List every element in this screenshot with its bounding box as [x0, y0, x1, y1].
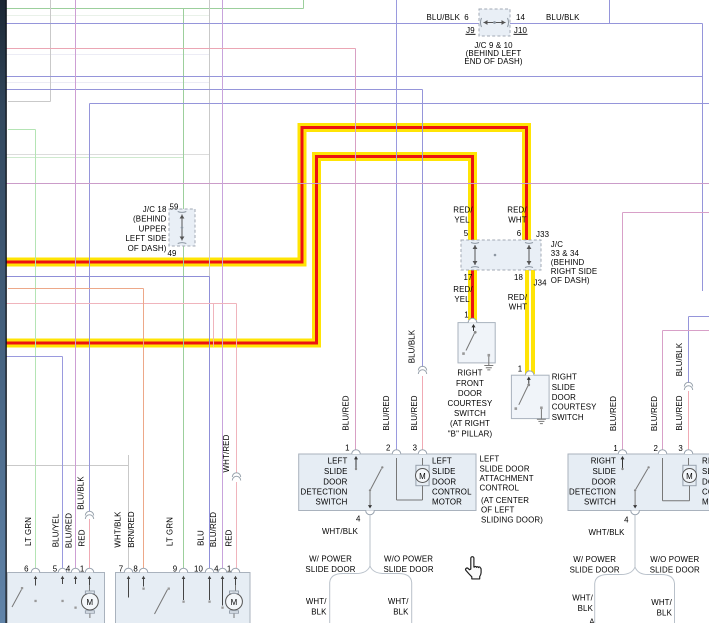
svg-text:SLIDE DOOR: SLIDE DOOR [480, 464, 530, 473]
svg-text:2: 2 [654, 444, 659, 453]
svg-text:CONTROL: CONTROL [702, 488, 709, 497]
svg-text:BLK: BLK [311, 608, 327, 617]
svg-text:BLU/BLK: BLU/BLK [408, 329, 417, 363]
svg-text:J9: J9 [466, 26, 475, 35]
svg-text:BLU/RED: BLU/RED [650, 396, 659, 431]
svg-text:W/O POWER: W/O POWER [650, 555, 699, 564]
svg-text:17: 17 [463, 273, 472, 282]
svg-text:RED: RED [77, 529, 86, 546]
svg-text:6: 6 [464, 13, 469, 22]
svg-text:SLIDE: SLIDE [552, 383, 576, 392]
svg-text:1: 1 [518, 365, 523, 374]
svg-text:BLU/YEL: BLU/YEL [52, 513, 61, 547]
svg-text:(AT CENTER: (AT CENTER [481, 496, 529, 505]
svg-text:FRONT: FRONT [456, 379, 484, 388]
svg-text:BLK: BLK [657, 609, 673, 618]
svg-text:BLU/BLK: BLU/BLK [675, 342, 684, 376]
svg-text:MOTOR: MOTOR [432, 498, 462, 507]
svg-text:BLU/BLK: BLU/BLK [426, 13, 460, 22]
svg-text:49: 49 [167, 249, 177, 258]
svg-text:BLU/BLK: BLU/BLK [546, 13, 580, 22]
svg-text:J33: J33 [536, 230, 550, 239]
svg-text:RIGHT: RIGHT [552, 373, 577, 382]
svg-text:RIGHT: RIGHT [591, 457, 616, 466]
svg-text:7: 7 [119, 565, 124, 574]
svg-text:8: 8 [133, 565, 138, 574]
svg-text:WHT: WHT [508, 216, 526, 225]
svg-text:LEFT SIDE: LEFT SIDE [125, 234, 166, 243]
svg-text:END OF DASH): END OF DASH) [464, 57, 523, 66]
svg-text:YEL: YEL [454, 295, 470, 304]
svg-text:LT GRN: LT GRN [166, 517, 175, 546]
svg-text:OF DASH): OF DASH) [128, 244, 167, 253]
svg-text:5: 5 [53, 565, 58, 574]
svg-text:DOOR: DOOR [592, 477, 616, 486]
svg-text:RED/: RED/ [453, 285, 473, 294]
svg-text:J34: J34 [534, 279, 548, 288]
svg-text:RIGHT: RIGHT [702, 457, 709, 466]
svg-text:SLIDE DOOR: SLIDE DOOR [384, 565, 434, 574]
svg-text:CONTROL: CONTROL [480, 484, 520, 493]
svg-text:YEL: YEL [454, 216, 470, 225]
svg-text:WHT/: WHT/ [651, 598, 672, 607]
svg-text:1: 1 [80, 565, 85, 574]
svg-text:M: M [231, 598, 238, 607]
svg-text:BRN/RED: BRN/RED [127, 511, 136, 548]
svg-text:DOOR: DOOR [458, 389, 482, 398]
svg-text:SLIDE: SLIDE [324, 467, 348, 476]
svg-text:1: 1 [464, 311, 469, 320]
svg-text:SLIDE DOOR: SLIDE DOOR [305, 565, 355, 574]
svg-text:(BEHIND: (BEHIND [551, 258, 585, 267]
svg-text:A: A [589, 618, 595, 623]
svg-text:J10: J10 [514, 26, 528, 35]
svg-text:SLIDE: SLIDE [592, 467, 616, 476]
svg-text:18: 18 [514, 273, 524, 282]
svg-text:9: 9 [173, 565, 178, 574]
svg-text:2: 2 [386, 444, 391, 453]
svg-text:SWITCH: SWITCH [454, 409, 486, 418]
svg-text:(BEHIND: (BEHIND [133, 215, 167, 224]
svg-text:J/C: J/C [551, 240, 563, 249]
svg-text:3: 3 [413, 444, 418, 453]
svg-text:LEFT: LEFT [328, 457, 348, 466]
svg-text:SLIDE DOOR: SLIDE DOOR [570, 566, 620, 575]
svg-text:WHT/RED: WHT/RED [222, 434, 231, 472]
svg-text:CONTROL: CONTROL [432, 488, 472, 497]
svg-text:DOOR: DOOR [552, 393, 576, 402]
svg-text:W/ POWER: W/ POWER [309, 555, 352, 564]
svg-text:SWITCH: SWITCH [552, 413, 584, 422]
svg-text:LEFT: LEFT [432, 457, 452, 466]
svg-text:3: 3 [678, 444, 683, 453]
svg-text:SLIDE DOOR: SLIDE DOOR [650, 566, 700, 575]
svg-text:WHT/BLK: WHT/BLK [114, 511, 123, 548]
svg-text:DETECTION: DETECTION [301, 488, 348, 497]
svg-text:OF LEFT: OF LEFT [481, 506, 515, 515]
svg-text:SLIDING DOOR): SLIDING DOOR) [481, 515, 543, 524]
svg-text:BLU: BLU [197, 530, 206, 546]
svg-text:WHT: WHT [509, 303, 527, 312]
svg-text:"B" PILLAR): "B" PILLAR) [448, 429, 493, 438]
svg-text:DOOR: DOOR [323, 477, 347, 486]
svg-text:W/O POWER: W/O POWER [384, 555, 433, 564]
svg-text:BLK: BLK [393, 608, 409, 617]
svg-text:DETECTION: DETECTION [569, 488, 616, 497]
svg-text:ATTACHMENT: ATTACHMENT [480, 474, 534, 483]
svg-text:BLU/RED: BLU/RED [342, 395, 351, 430]
svg-text:SLIDE: SLIDE [432, 467, 456, 476]
svg-text:BLU/RED: BLU/RED [609, 396, 618, 431]
svg-text:14: 14 [516, 13, 526, 22]
svg-text:LT GRN: LT GRN [24, 517, 33, 546]
svg-text:BLU/RED: BLU/RED [675, 395, 684, 430]
svg-text:BLU/BLK: BLU/BLK [77, 476, 86, 510]
svg-text:4: 4 [356, 515, 361, 524]
svg-text:WHT/: WHT/ [306, 597, 327, 606]
svg-text:6: 6 [24, 565, 29, 574]
svg-text:33 & 34: 33 & 34 [551, 249, 580, 258]
svg-text:WHT/: WHT/ [388, 597, 409, 606]
svg-text:4: 4 [214, 565, 219, 574]
svg-text:10: 10 [194, 565, 204, 574]
svg-text:1: 1 [613, 444, 618, 453]
svg-text:5: 5 [464, 229, 469, 238]
svg-text:1: 1 [345, 444, 350, 453]
svg-text:RED/: RED/ [507, 206, 527, 215]
svg-text:SWITCH: SWITCH [584, 498, 616, 507]
svg-text:4: 4 [624, 516, 629, 525]
svg-text:W/ POWER: W/ POWER [573, 555, 616, 564]
svg-text:M: M [686, 472, 693, 481]
svg-text:RED: RED [225, 529, 234, 546]
svg-text:LEFT: LEFT [480, 455, 500, 464]
svg-text:OF DASH): OF DASH) [551, 276, 590, 285]
svg-text:RED/: RED/ [508, 293, 528, 302]
svg-text:WHT/BLK: WHT/BLK [322, 527, 359, 536]
svg-text:DOOR: DOOR [702, 477, 709, 486]
svg-text:BLU/RED: BLU/RED [209, 512, 218, 547]
svg-text:MOTOR: MOTOR [702, 498, 709, 507]
svg-text:SLIDE: SLIDE [702, 467, 709, 476]
svg-text:COURTESY: COURTESY [448, 399, 493, 408]
svg-text:BLU/RED: BLU/RED [382, 395, 391, 430]
svg-text:UPPER: UPPER [139, 224, 167, 233]
svg-text:RED/: RED/ [453, 206, 473, 215]
svg-text:J/C 18: J/C 18 [143, 205, 167, 214]
svg-text:BLU/RED: BLU/RED [410, 395, 419, 430]
svg-text:1: 1 [227, 565, 232, 574]
svg-text:WHT/BLK: WHT/BLK [588, 528, 625, 537]
svg-text:COURTESY: COURTESY [552, 403, 597, 412]
svg-text:(AT RIGHT: (AT RIGHT [450, 419, 490, 428]
svg-text:RIGHT SIDE: RIGHT SIDE [551, 267, 598, 276]
svg-text:4: 4 [66, 565, 71, 574]
svg-text:59: 59 [169, 203, 179, 212]
svg-text:WHT/: WHT/ [572, 594, 593, 603]
svg-text:DOOR: DOOR [432, 477, 456, 486]
svg-text:M: M [87, 598, 94, 607]
svg-text:BLK: BLK [578, 604, 594, 613]
svg-text:6: 6 [517, 229, 522, 238]
svg-text:BLU/RED: BLU/RED [65, 513, 74, 548]
svg-text:M: M [419, 472, 426, 481]
svg-text:RIGHT: RIGHT [457, 369, 482, 378]
svg-text:SWITCH: SWITCH [315, 498, 347, 507]
